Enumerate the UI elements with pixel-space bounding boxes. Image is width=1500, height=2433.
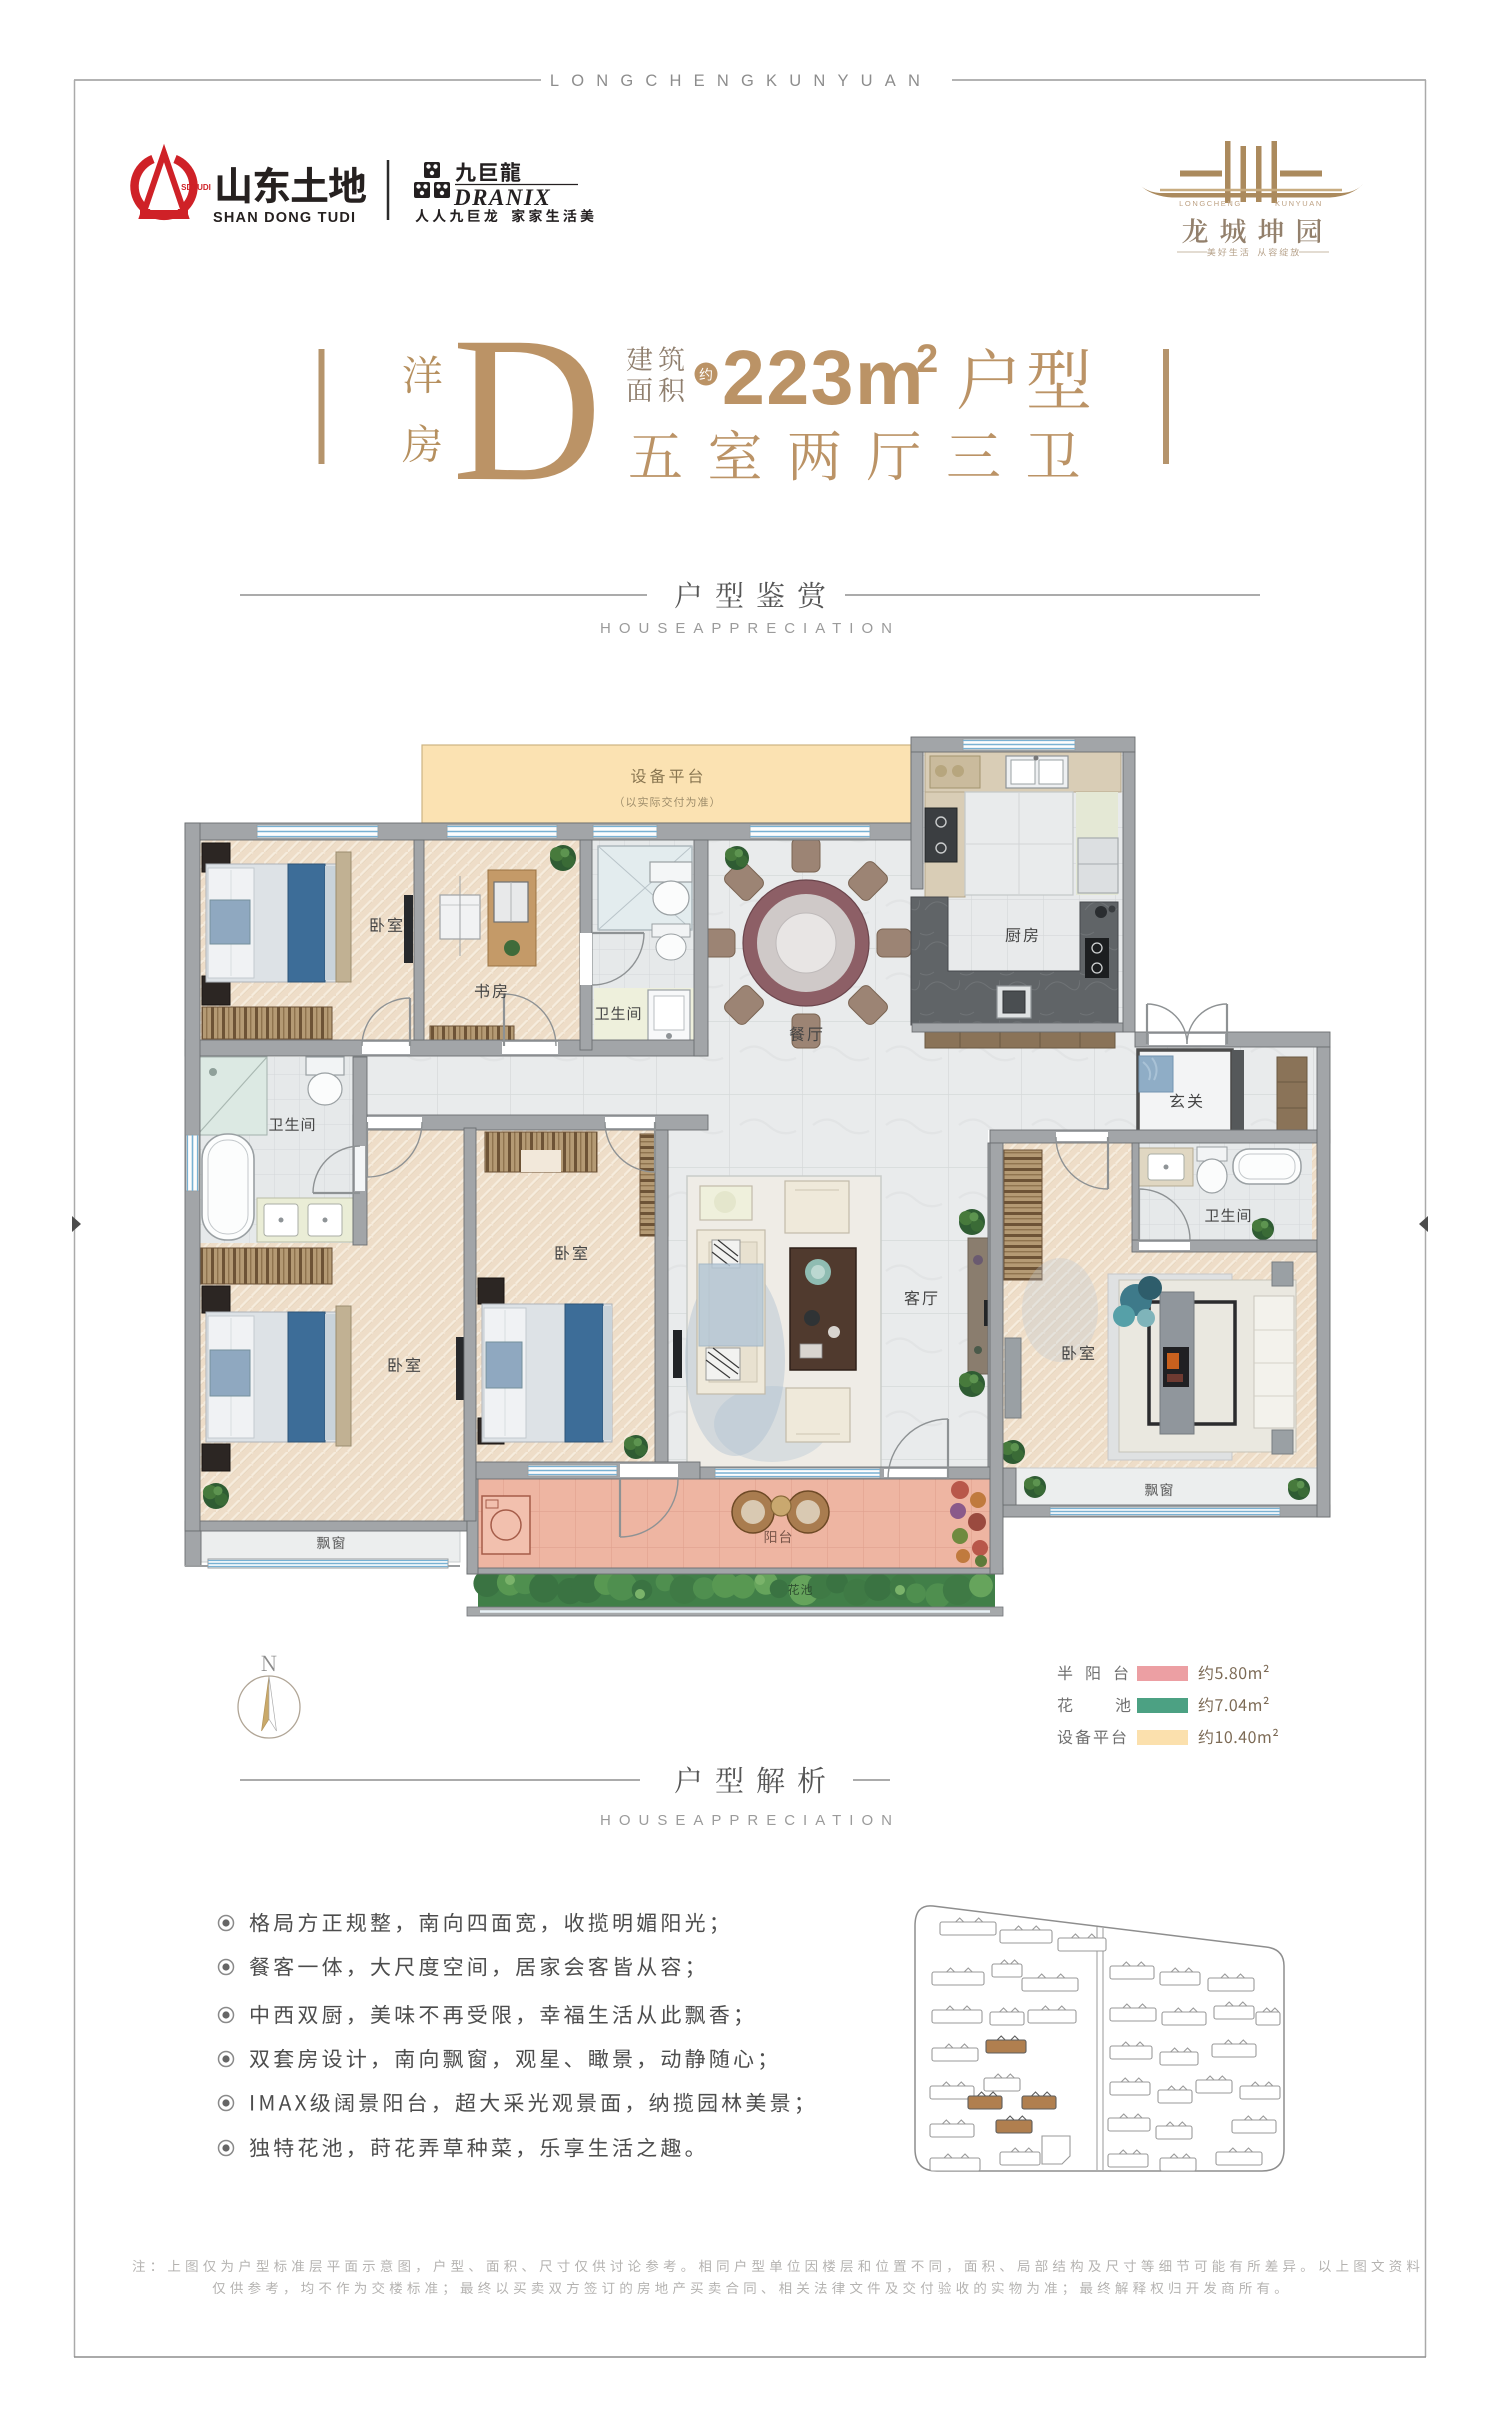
svg-text:D: D (452, 294, 602, 524)
svg-text:HOUSEAPPRECIATION: HOUSEAPPRECIATION (600, 1812, 900, 1829)
svg-text:SDTUDI: SDTUDI (181, 183, 211, 192)
svg-text:DRANIX: DRANIX (453, 185, 551, 210)
svg-text:223m: 223m (722, 335, 925, 421)
svg-text:LONGCHENGKUNYUAN: LONGCHENGKUNYUAN (550, 72, 932, 90)
svg-text:HOUSEAPPRECIATION: HOUSEAPPRECIATION (600, 620, 900, 637)
svg-text:LONGCHENG KUNYUAN: LONGCHENG KUNYUAN (1179, 199, 1323, 208)
svg-text:2: 2 (916, 337, 938, 381)
svg-text:SHAN DONG TUDI: SHAN DONG TUDI (213, 210, 356, 226)
